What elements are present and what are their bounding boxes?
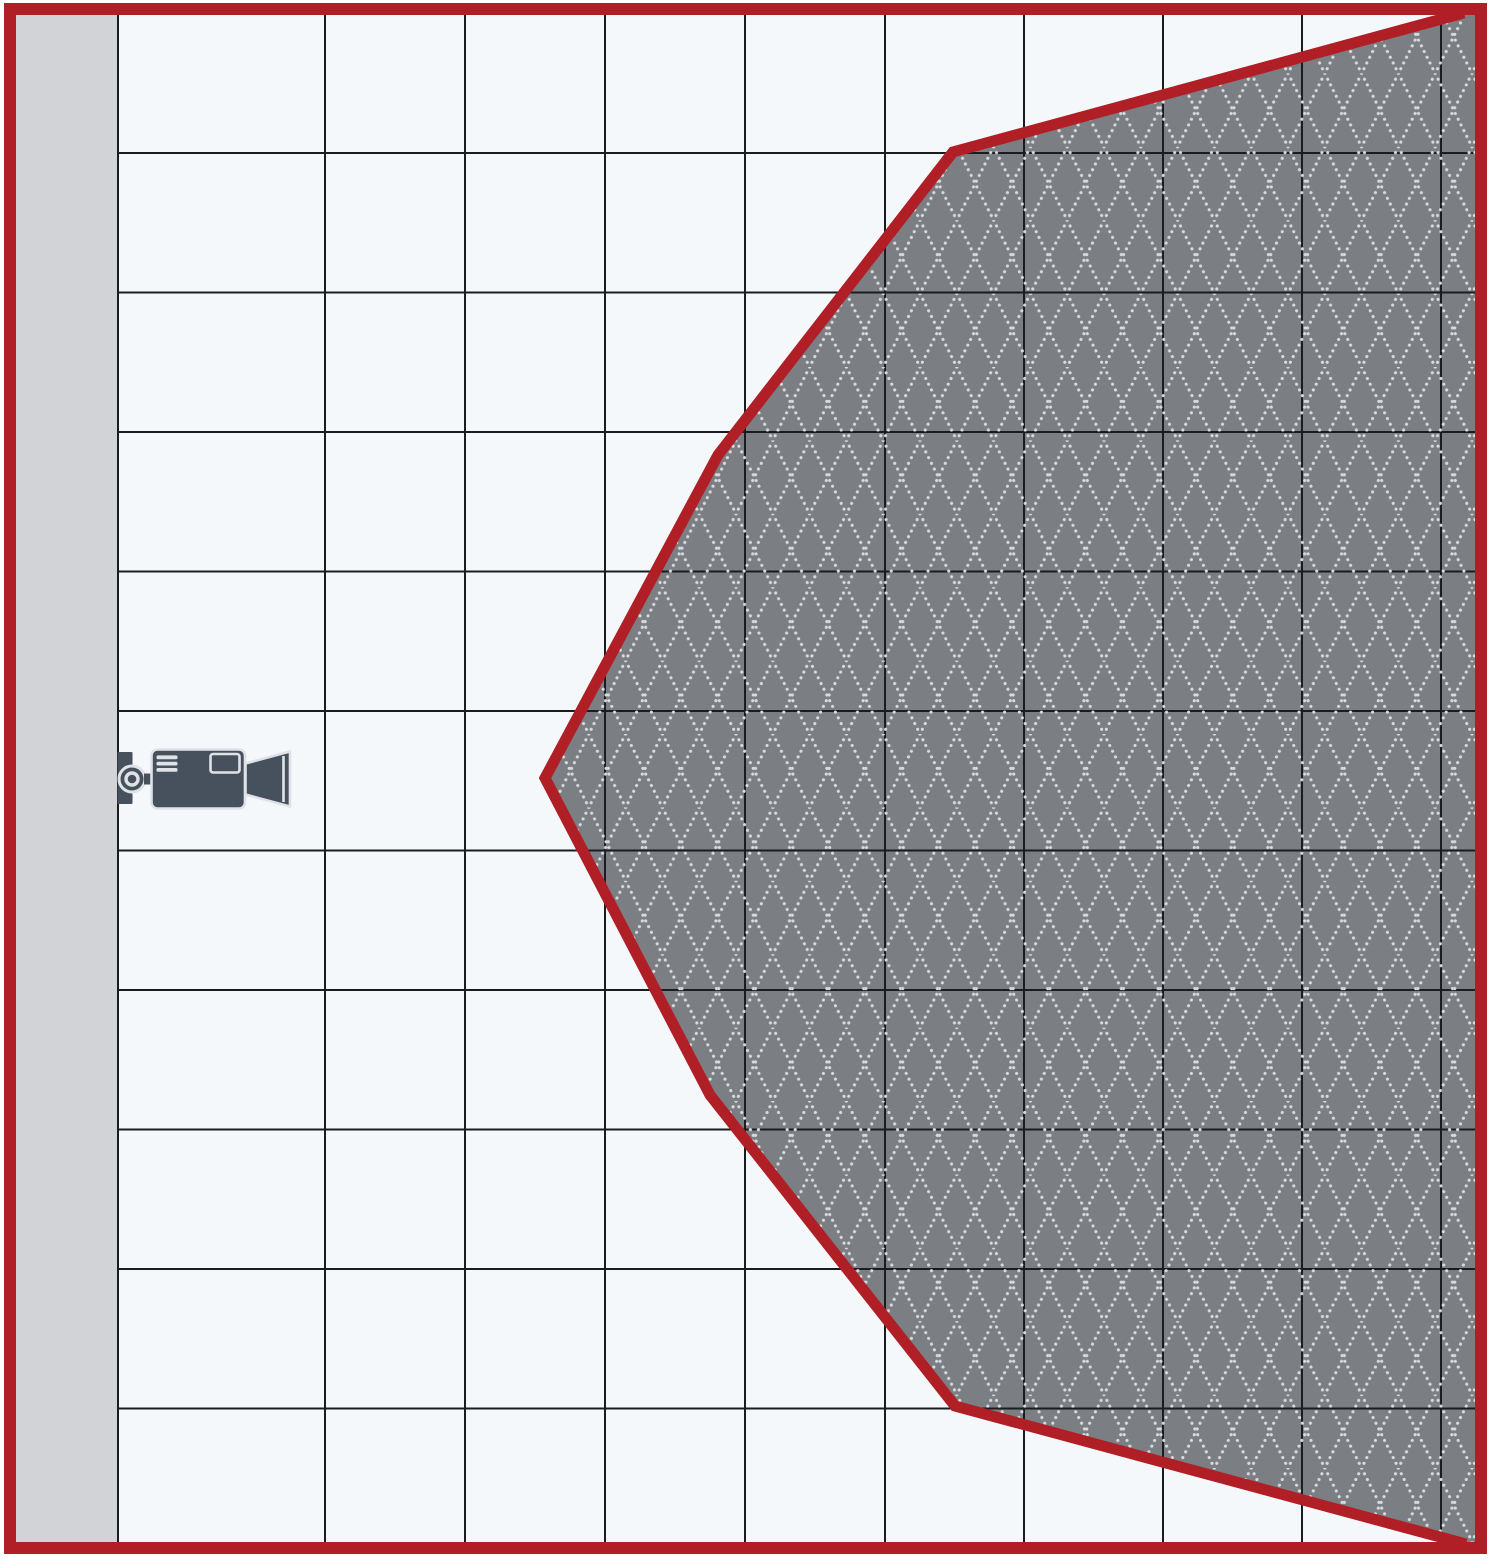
diagram-stage	[0, 0, 1491, 1559]
coverage-diagram	[0, 0, 1491, 1559]
camera-vent-line	[157, 762, 178, 766]
camera-vent-line	[157, 755, 178, 759]
camera-vent-line	[157, 768, 178, 772]
camera-pivot	[119, 766, 145, 792]
wall-strip	[16, 15, 118, 1542]
